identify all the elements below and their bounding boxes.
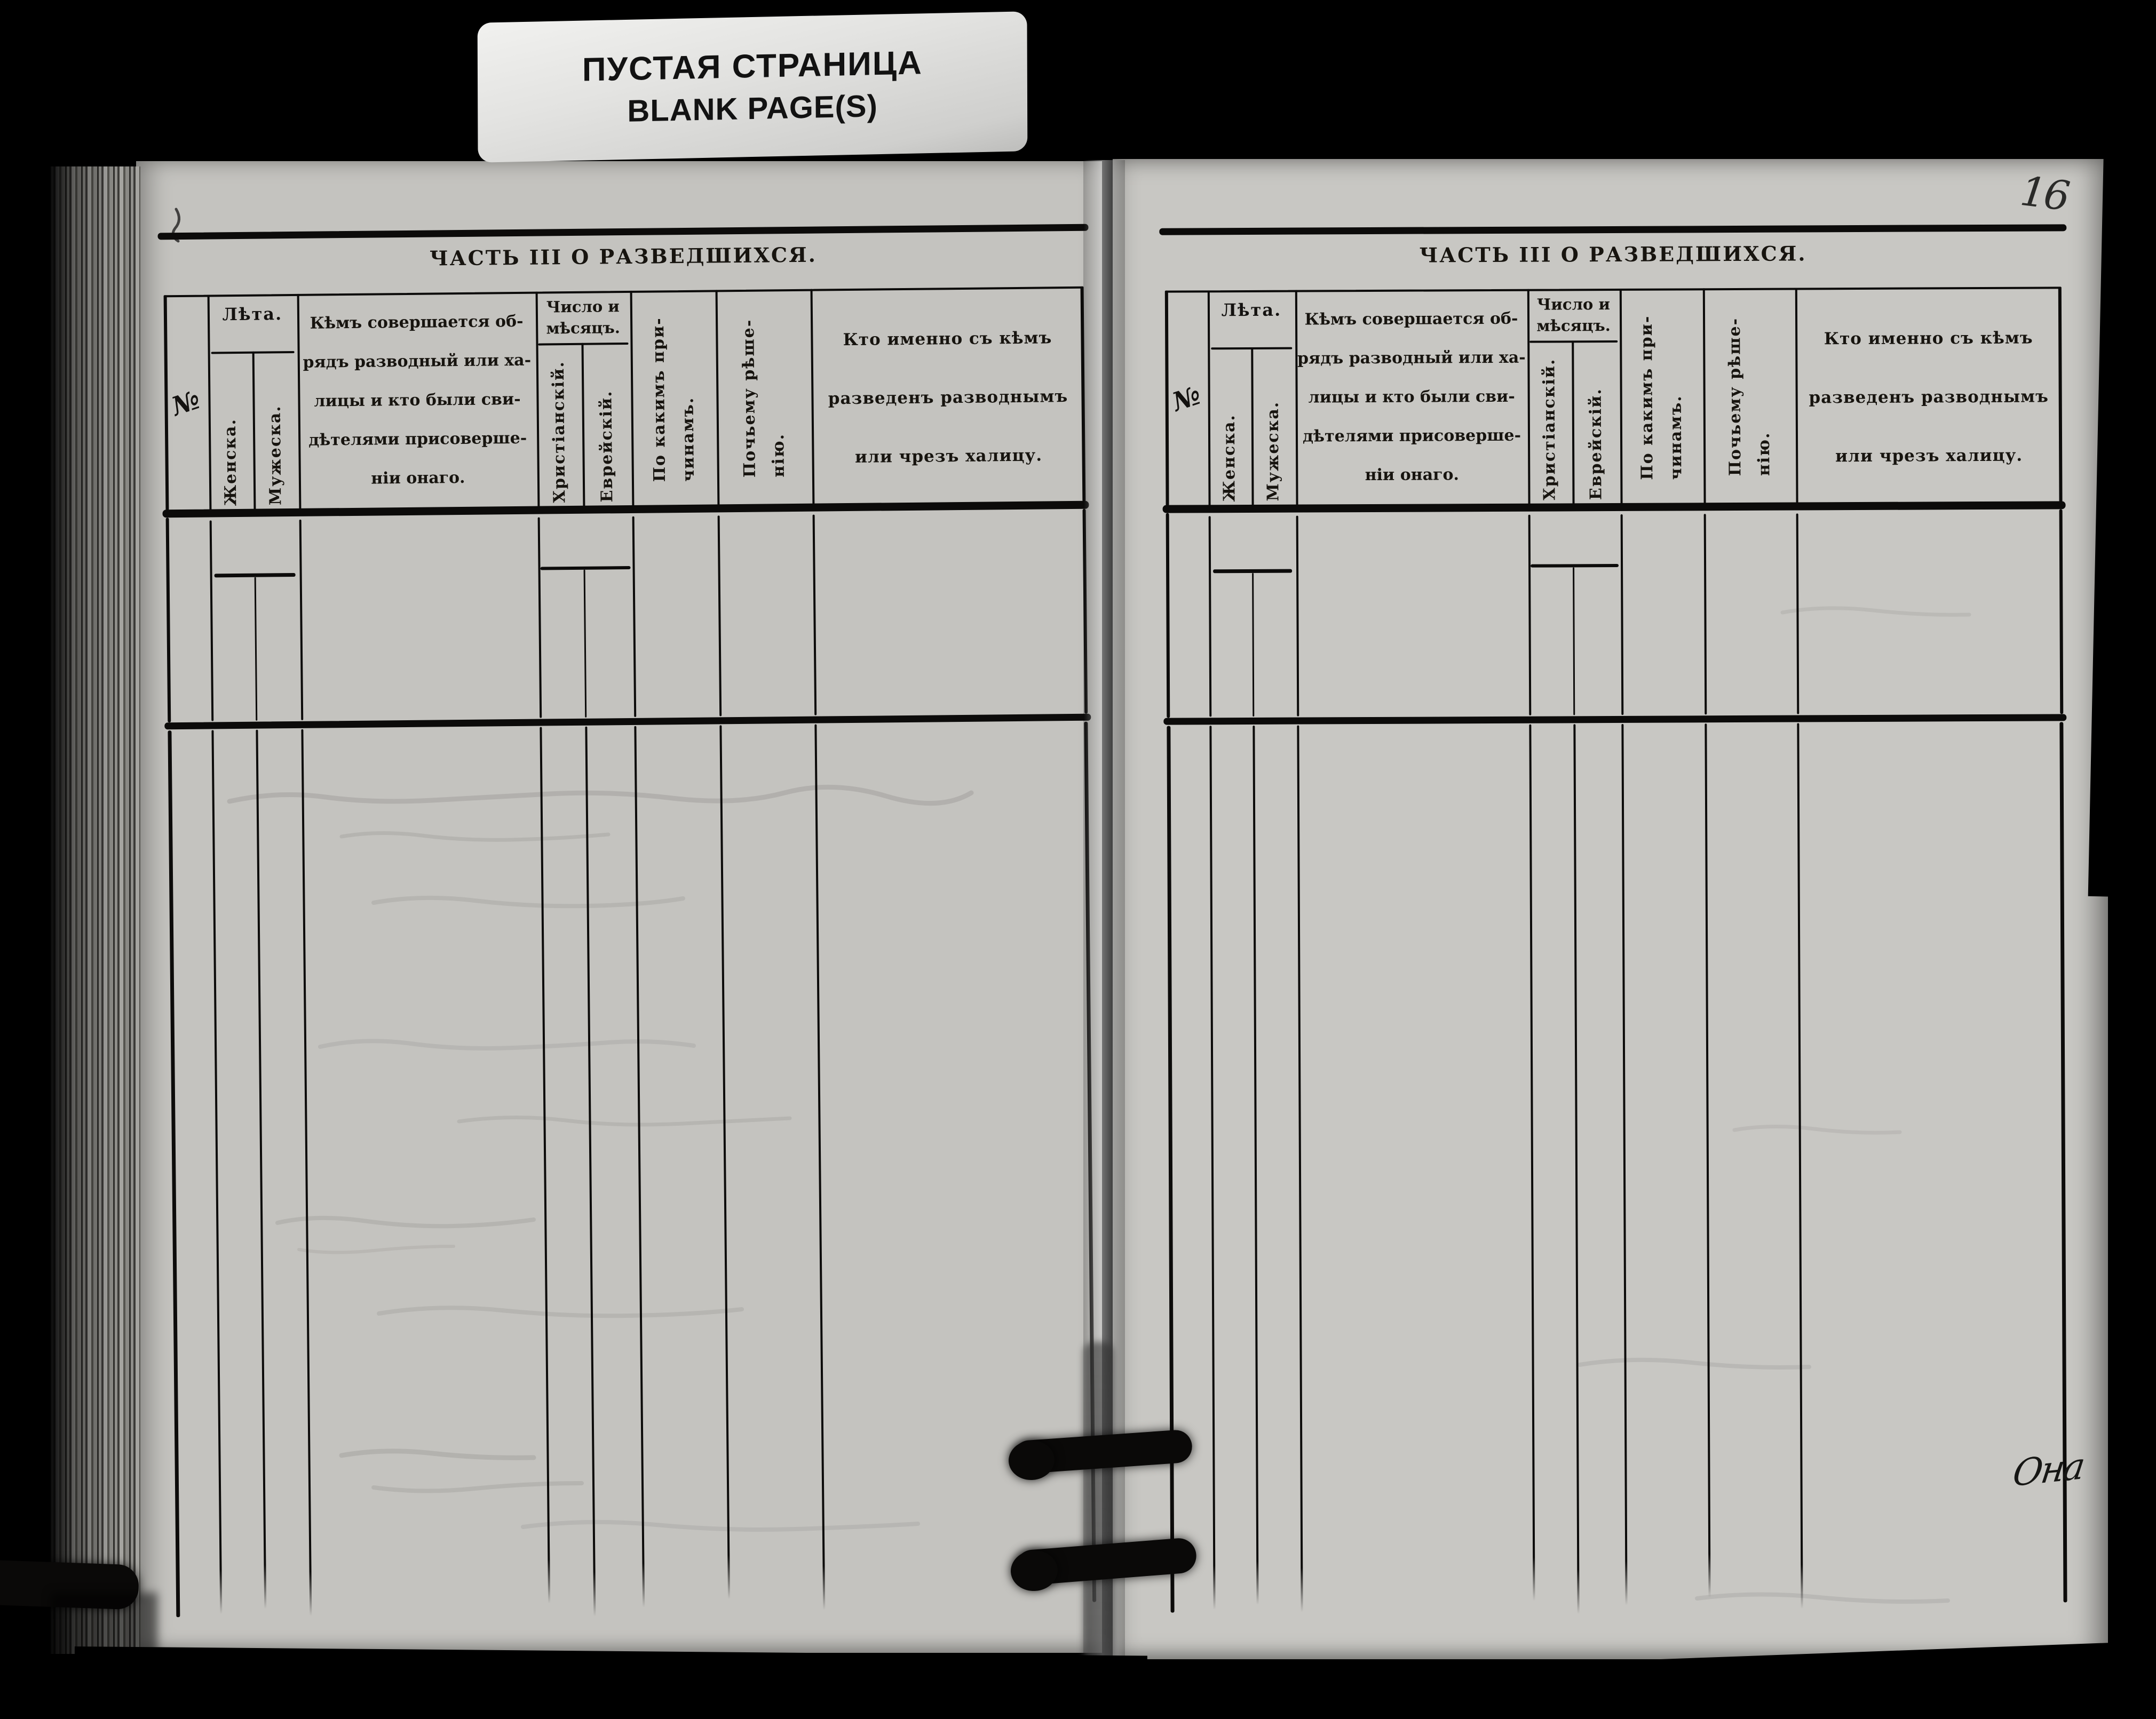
kto-line3: или чрезъ халицу.: [855, 426, 1043, 487]
body-col-line-kto-imenno: [1797, 723, 1803, 1609]
column-header-khristianskiy: Христіанскій.: [1527, 345, 1572, 500]
column-header-muzheska-text: Мужеска.: [1261, 401, 1286, 502]
group-header-chislo-line2: мѣсяцъ.: [546, 317, 620, 339]
body-col-line-evreyskiy: [585, 727, 596, 1617]
blank-page-banner: ПУСТАЯ СТРАНИЦА BLANK PAGE(S): [478, 11, 1028, 163]
band-col-line-kto-imenno: [813, 515, 817, 715]
body-col-line-muzheska: [256, 730, 266, 1609]
rule-under-band: [164, 714, 1091, 730]
band-leta-split: [1252, 573, 1254, 717]
kem-line3: лицы и кто были сви-: [1308, 377, 1515, 417]
column-header-kem-sovershaetsya: Кѣмъ совершается об-рядъ разводный или х…: [302, 302, 533, 499]
column-header-po-kakim-prichinam: По какимъ при-чинамъ.: [630, 297, 718, 502]
band-col-line-kto-imenno: [1796, 514, 1800, 714]
scan-edge-bottom-left: [74, 1646, 1147, 1719]
kem-line2: рядъ разводный или ха-: [303, 341, 531, 382]
body-col-line-khristianskiy: [1529, 725, 1535, 1601]
binding-lace-shadow: [1083, 1342, 1113, 1689]
column-header-zhenska: Женска.: [1208, 352, 1251, 502]
band-border-left: [1166, 513, 1170, 718]
body-col-line-zhenska: [211, 730, 221, 1614]
column-header-pochemu-resheniyu-text: Почьему рѣше-нію.: [734, 319, 794, 477]
column-header-pochemu-resheniyu: Почьему рѣше-нію.: [1703, 295, 1796, 499]
group-header-chislo-line1: Число и: [1537, 293, 1610, 315]
column-header-num: №: [164, 295, 210, 509]
handwritten-scribble: Она: [2010, 1445, 2087, 1495]
body-col-line-kto-imenno: [814, 725, 825, 1610]
banner-text-russian: ПУСТАЯ СТРАНИЦА: [582, 44, 923, 89]
column-header-zhenska-text: Женска.: [218, 418, 244, 506]
handwritten-page-number: 16: [2018, 167, 2071, 220]
band-col-line-po-kakim-prichinam: [1621, 514, 1624, 715]
column-header-kto-imenno: Кто именно съ кѣмъразведенъ разводнымъил…: [816, 308, 1080, 487]
column-header-muzheska: Мужеска.: [252, 355, 299, 506]
band-chislo-crossbar: [1531, 564, 1619, 568]
body-col-line-muzheska: [1253, 726, 1258, 1605]
column-header-evreyskiy-text: Еврейскій.: [594, 390, 620, 502]
body-col-line-po-kakim-prichinam: [1621, 724, 1627, 1605]
group-header-chislo: Число имѣсяцъ.: [532, 296, 635, 339]
band-chislo-split: [1573, 567, 1575, 715]
book-page-edges: [51, 166, 140, 1654]
band-col-line-zhenska: [210, 520, 214, 721]
kem-line3: лицы и кто были сви-: [314, 380, 521, 421]
band-col-line-zhenska: [1209, 516, 1212, 717]
header-top-rule: [1165, 286, 2062, 292]
group-header-chislo-line1: Число и: [546, 296, 620, 317]
kem-line2: рядъ разводный или ха-: [1297, 338, 1526, 378]
kto-line1: Кто именно съ кѣмъ: [843, 308, 1052, 369]
body-col-line-pochemu-resheniyu: [1705, 723, 1710, 1597]
column-header-evreyskiy-text: Еврейскій.: [1583, 388, 1608, 500]
num-glyph: №: [1169, 380, 1204, 418]
band-leta-split: [255, 577, 258, 721]
banner-text-english: BLANK PAGE(S): [627, 88, 878, 129]
kto-line2: разведенъ разводнымъ: [828, 367, 1068, 428]
group-header-chislo-line2: мѣсяцъ.: [1536, 315, 1611, 337]
group-leta-divider: [211, 351, 295, 354]
kem-line4: дѣтелями присоверше-: [1303, 416, 1521, 456]
column-header-muzheska-text: Мужеска.: [263, 405, 289, 505]
kem-line1: Кѣмъ совершается об-: [1304, 299, 1518, 339]
group-chislo-divider: [538, 343, 628, 346]
body-col-line-po-kakim-prichinam: [634, 726, 644, 1607]
body-col-line-kem-sovershaetsya: [1297, 726, 1303, 1612]
table-title: ЧАСТЬ III О РАЗВЕДШИХСЯ.: [1164, 238, 2061, 270]
column-header-pochemu-resheniyu-text: Почьему рѣше-нію.: [1721, 317, 1779, 476]
column-header-po-kakim-prichinam: По какимъ при-чинамъ.: [1620, 295, 1704, 499]
body-col-line-khristianskiy: [540, 727, 550, 1604]
divorce-register-table-left: ЧАСТЬ III О РАЗВЕДШИХСЯ.№Лѣта.Число имѣс…: [163, 224, 1096, 1630]
kto-line1: Кто именно съ кѣмъ: [1824, 309, 2033, 369]
column-header-zhenska-text: Женска.: [1217, 414, 1242, 502]
band-col-line-po-kakim-prichinam: [632, 516, 637, 717]
kem-line5: ніи онаго.: [1365, 455, 1459, 495]
column-header-zhenska: Женска.: [208, 356, 254, 506]
column-header-muzheska: Мужеска.: [1251, 352, 1296, 502]
num-glyph: №: [168, 385, 204, 422]
divorce-register-table-right: ЧАСТЬ III О РАЗВЕДШИХСЯ.№Лѣта.Число имѣс…: [1164, 224, 2067, 1626]
table-title: ЧАСТЬ III О РАЗВЕДШИХСЯ.: [163, 238, 1083, 276]
band-chislo-crossbar: [541, 566, 631, 570]
kem-line5: ніи онаго.: [371, 458, 465, 498]
kem-line1: Кѣмъ совершается об-: [310, 302, 523, 343]
kem-line4: дѣтелями присоверше-: [308, 419, 527, 460]
column-header-khristianskiy: Христіанскій.: [536, 347, 583, 503]
group-chislo-divider: [1529, 340, 1618, 343]
kto-line3: или чрезъ халицу.: [1835, 426, 2023, 486]
column-header-khristianskiy-text: Христіанскій.: [546, 361, 573, 503]
band-col-line-khristianskiy: [538, 518, 542, 718]
column-header-po-kakim-prichinam-text: По какимъ при-чинамъ.: [1632, 315, 1691, 480]
body-col-line-kem-sovershaetsya: [301, 729, 311, 1616]
kto-line2: разведенъ разводнымъ: [1809, 367, 2049, 427]
column-header-pochemu-resheniyu: Почьему рѣше-нію.: [716, 296, 813, 501]
column-header-evreyskiy: Еврейскій.: [1572, 345, 1620, 500]
column-header-po-kakim-prichinam-text: По какимъ при-чинамъ.: [644, 316, 703, 482]
group-header-leta: Лѣта.: [208, 304, 297, 325]
band-col-line-khristianskiy: [1528, 515, 1532, 715]
body-col-line-pochemu-resheniyu: [719, 725, 730, 1599]
column-header-num: №: [1165, 290, 1209, 504]
column-header-kto-imenno: Кто именно съ кѣмъразведенъ разводнымъил…: [1801, 308, 2057, 486]
scanned-book-spread: ПУСТАЯ СТРАНИЦА BLANK PAGE(S) 16 Она ЧАС…: [0, 0, 2156, 1719]
band-col-line-pochemu-resheniyu: [718, 515, 722, 716]
group-header-leta: Лѣта.: [1208, 300, 1295, 321]
group-header-chislo: Число имѣсяцъ.: [1523, 293, 1624, 337]
column-header-evreyskiy: Еврейскій.: [582, 347, 632, 503]
column-header-kem-sovershaetsya: Кѣмъ совершается об-рядъ разводный или х…: [1299, 299, 1524, 495]
column-header-khristianskiy-text: Христіанскій.: [1537, 358, 1563, 500]
band-col-line-kem-sovershaetsya: [299, 520, 304, 720]
band-col-line-pochemu-resheniyu: [1704, 514, 1707, 714]
band-col-line-kem-sovershaetsya: [1296, 516, 1299, 717]
body-col-line-zhenska: [1209, 726, 1215, 1610]
band-chislo-split: [584, 570, 587, 718]
rule-under-header: [162, 501, 1089, 518]
body-col-line-evreyskiy: [1573, 724, 1579, 1614]
group-leta-divider: [1211, 347, 1292, 350]
